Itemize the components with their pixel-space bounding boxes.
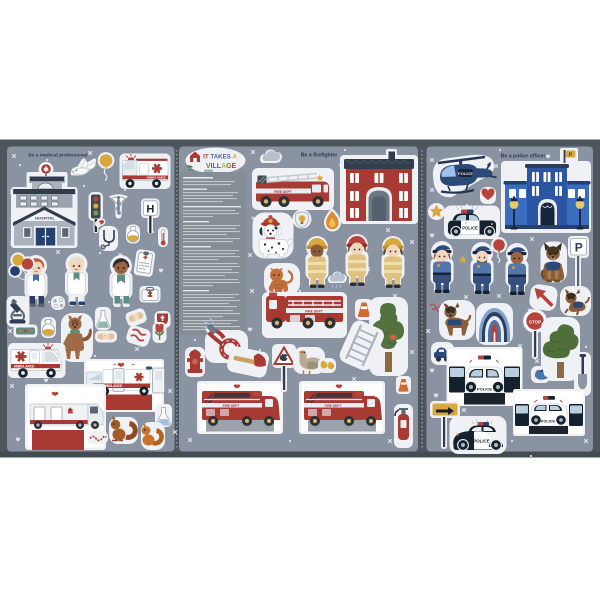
svg-text:AMBULANCE: AMBULANCE	[14, 365, 35, 369]
svg-text:AMBULANCE: AMBULANCE	[146, 176, 165, 180]
svg-text:VILLAGE: VILLAGE	[206, 163, 237, 170]
svg-text:POLICE: POLICE	[462, 226, 478, 231]
svg-text:FIRE DEPT: FIRE DEPT	[223, 404, 240, 408]
svg-text:FIRE DEPT: FIRE DEPT	[305, 309, 324, 313]
svg-text:POLICE: POLICE	[473, 439, 489, 444]
svg-text:IT TAKES A: IT TAKES A	[203, 154, 237, 161]
svg-text:STOP: STOP	[529, 319, 541, 324]
svg-text:P: P	[569, 153, 573, 159]
svg-text:HOSPITAL: HOSPITAL	[35, 215, 55, 220]
svg-text:P: P	[575, 241, 583, 255]
svg-text:FIRE DEPT: FIRE DEPT	[274, 190, 293, 194]
svg-text:FIRE DEPT: FIRE DEPT	[325, 404, 342, 408]
svg-text:POLICE: POLICE	[458, 171, 473, 176]
svg-text:Be a firefighter: Be a firefighter	[301, 153, 338, 159]
svg-text:Be a medical professional: Be a medical professional	[28, 153, 87, 159]
svg-text:Be a police officer: Be a police officer	[501, 154, 546, 160]
svg-text:POLICE: POLICE	[541, 419, 556, 423]
svg-text:POLICE: POLICE	[477, 387, 492, 392]
svg-text:H: H	[146, 204, 154, 216]
